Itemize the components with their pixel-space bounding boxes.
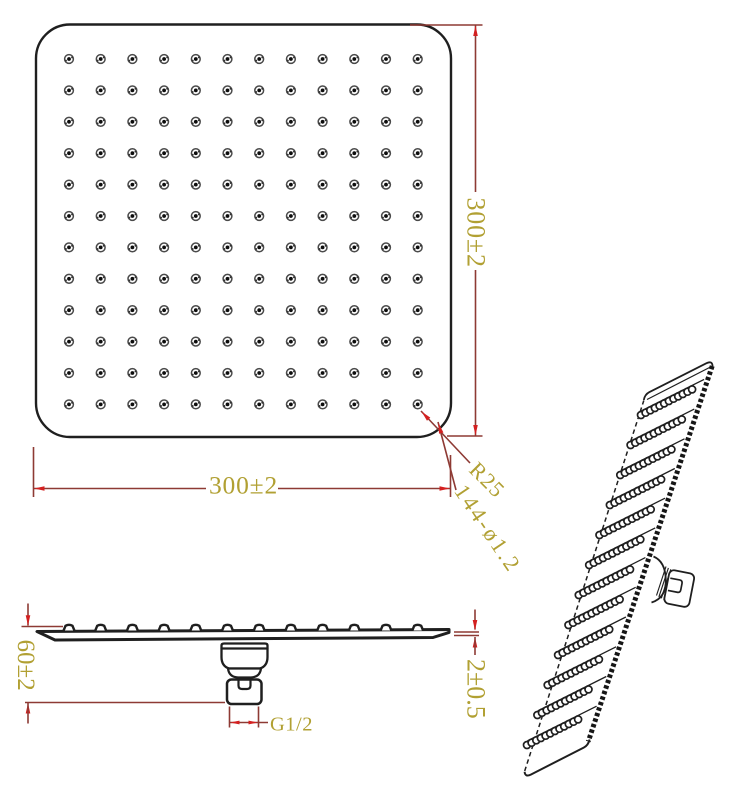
svg-text:300±2: 300±2: [462, 198, 491, 268]
svg-text:G1/2: G1/2: [270, 714, 313, 736]
svg-text:2±0.5: 2±0.5: [462, 659, 491, 719]
svg-text:300±2: 300±2: [209, 471, 278, 500]
svg-text:60±2: 60±2: [12, 640, 39, 691]
